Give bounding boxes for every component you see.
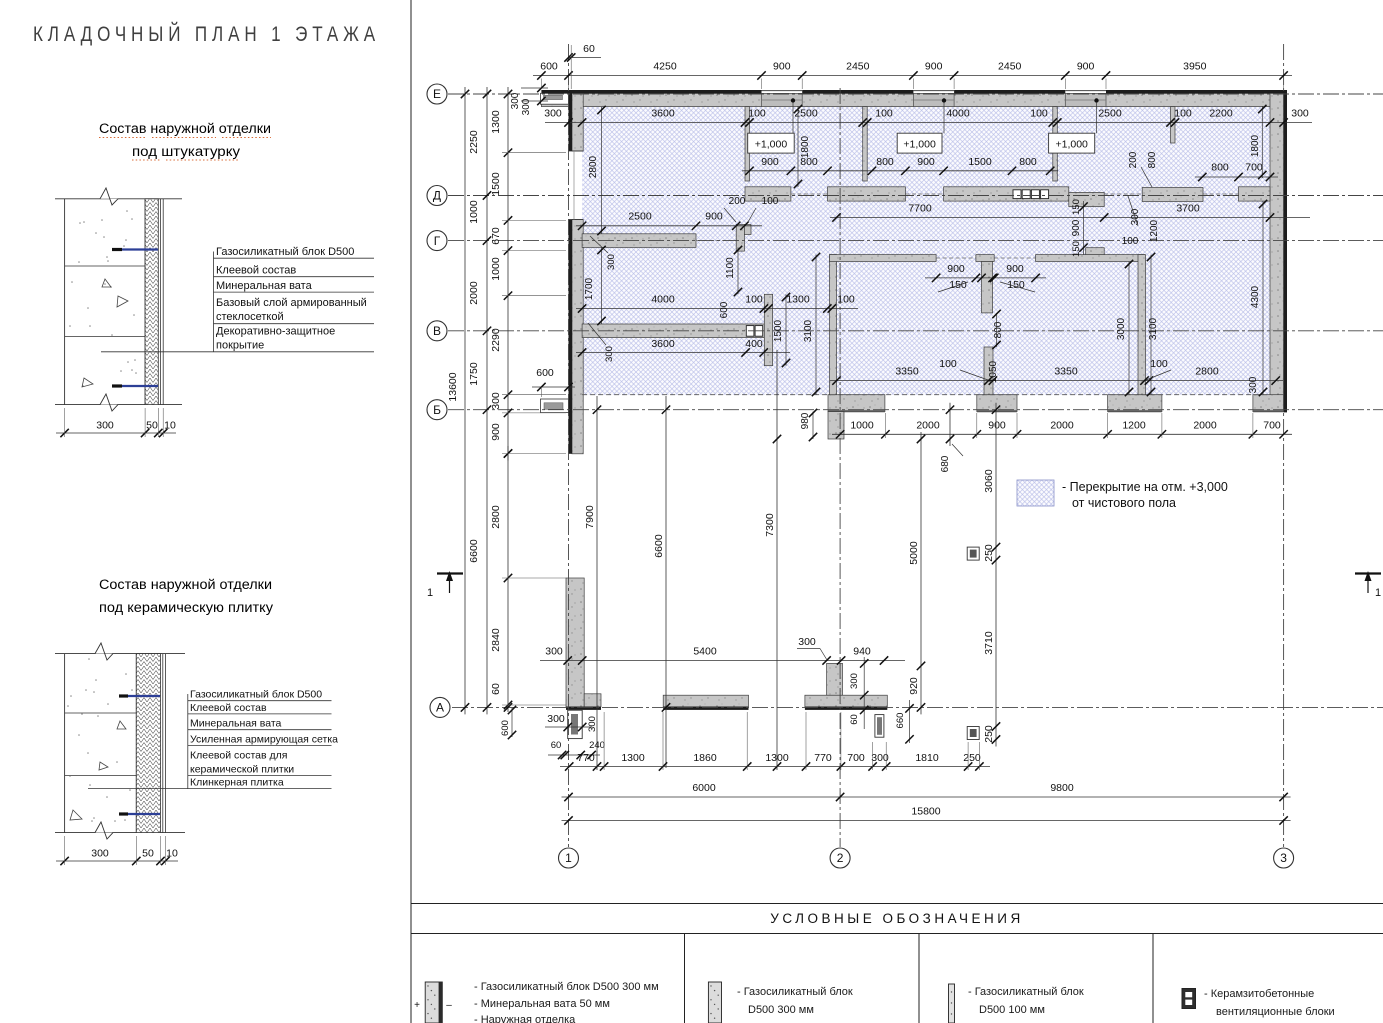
- svg-text:300: 300: [96, 420, 114, 432]
- svg-text:+: +: [414, 1000, 420, 1011]
- svg-text:300: 300: [587, 716, 598, 732]
- svg-text:1300: 1300: [786, 294, 810, 306]
- svg-text:1000: 1000: [850, 419, 874, 431]
- svg-text:2000: 2000: [1193, 419, 1217, 431]
- svg-text:керамической плитки: керамической плитки: [190, 764, 294, 776]
- svg-text:2500: 2500: [1098, 108, 1122, 120]
- svg-text:2800: 2800: [490, 505, 502, 529]
- svg-text:под штукатурку: под штукатурку: [132, 144, 240, 159]
- svg-text:1050: 1050: [988, 360, 999, 383]
- svg-text:100: 100: [875, 108, 893, 120]
- svg-text:250: 250: [983, 725, 995, 743]
- svg-text:1810: 1810: [915, 752, 939, 764]
- svg-text:7700: 7700: [908, 203, 932, 215]
- svg-text:200: 200: [729, 196, 746, 207]
- svg-text:2: 2: [837, 851, 844, 865]
- svg-text:Клеевой состав для: Клеевой состав для: [190, 750, 287, 762]
- svg-text:300: 300: [604, 346, 615, 362]
- svg-text:700: 700: [847, 752, 865, 764]
- svg-text:В: В: [433, 324, 441, 338]
- svg-text:1300: 1300: [765, 752, 789, 764]
- svg-text:100: 100: [1122, 236, 1139, 247]
- svg-text:Газосиликатный блок D500: Газосиликатный блок D500: [216, 246, 354, 258]
- svg-text:600: 600: [540, 61, 558, 73]
- svg-text:3060: 3060: [983, 469, 995, 493]
- svg-text:3700: 3700: [1176, 203, 1200, 215]
- svg-text:3100: 3100: [1148, 317, 1159, 340]
- svg-text:6600: 6600: [653, 534, 665, 558]
- svg-text:150: 150: [1071, 199, 1082, 215]
- svg-text:2450: 2450: [846, 61, 870, 73]
- svg-text:Д: Д: [433, 189, 441, 203]
- svg-text:Базовый слой армированный: Базовый слой армированный: [216, 297, 367, 309]
- svg-text:400: 400: [745, 338, 763, 350]
- svg-text:980: 980: [800, 412, 811, 429]
- svg-text:13600: 13600: [447, 372, 459, 401]
- svg-text:4000: 4000: [946, 108, 970, 120]
- svg-text:2800: 2800: [1195, 366, 1219, 378]
- svg-text:2800: 2800: [588, 155, 599, 178]
- svg-text:300: 300: [849, 673, 860, 689]
- svg-text:3000: 3000: [1116, 317, 1127, 340]
- svg-text:4250: 4250: [653, 61, 677, 73]
- svg-text:300: 300: [490, 392, 502, 410]
- svg-text:900: 900: [925, 61, 943, 73]
- svg-text:стеклосеткой: стеклосеткой: [216, 311, 284, 323]
- svg-text:1300: 1300: [490, 110, 502, 134]
- svg-text:3950: 3950: [1183, 61, 1207, 73]
- svg-text:1: 1: [565, 851, 572, 865]
- svg-text:Декоративно-защитное: Декоративно-защитное: [216, 326, 335, 338]
- svg-text:3710: 3710: [983, 631, 995, 655]
- svg-text:D500 100 мм: D500 100 мм: [979, 1004, 1045, 1016]
- svg-text:7300: 7300: [764, 513, 776, 537]
- svg-text:под керамическую плитку: под керамическую плитку: [99, 600, 273, 615]
- svg-text:1: 1: [1375, 587, 1381, 599]
- svg-text:Газосиликатный блок D500: Газосиликатный блок D500: [190, 689, 322, 701]
- svg-text:60: 60: [849, 714, 860, 725]
- svg-text:Минеральная вата: Минеральная вата: [216, 280, 313, 292]
- svg-text:680: 680: [940, 455, 951, 472]
- svg-text:6000: 6000: [692, 782, 716, 794]
- svg-text:1800: 1800: [1250, 134, 1261, 157]
- svg-text:940: 940: [853, 646, 871, 658]
- svg-text:1200: 1200: [1122, 419, 1146, 431]
- svg-text:4300: 4300: [1250, 285, 1261, 308]
- svg-text:300: 300: [1130, 208, 1141, 225]
- svg-text:4000: 4000: [651, 294, 675, 306]
- svg-text:+1,000: +1,000: [755, 139, 788, 151]
- svg-text:- Минеральная вата 50 мм: - Минеральная вата 50 мм: [474, 998, 610, 1010]
- svg-text:300: 300: [545, 646, 563, 658]
- svg-text:Б: Б: [433, 403, 441, 417]
- svg-text:- Керамзитобетонные: - Керамзитобетонные: [1204, 988, 1314, 1000]
- svg-text:250: 250: [963, 752, 981, 764]
- svg-text:60: 60: [551, 740, 562, 751]
- svg-text:100: 100: [1150, 358, 1168, 370]
- svg-text:Е: Е: [433, 87, 441, 101]
- svg-text:60: 60: [490, 683, 502, 695]
- svg-text:1700: 1700: [584, 277, 595, 300]
- svg-text:700: 700: [1245, 162, 1263, 174]
- svg-text:5400: 5400: [693, 646, 717, 658]
- svg-text:100: 100: [748, 108, 766, 120]
- svg-text:1300: 1300: [621, 752, 645, 764]
- svg-text:2840: 2840: [490, 628, 502, 652]
- svg-text:2000: 2000: [468, 281, 480, 305]
- svg-text:600: 600: [719, 301, 730, 318]
- svg-text:300: 300: [510, 92, 521, 109]
- svg-text:7900: 7900: [584, 505, 596, 529]
- svg-text:920: 920: [908, 677, 920, 695]
- svg-text:покрытие: покрытие: [216, 340, 264, 352]
- svg-text:900: 900: [988, 419, 1006, 431]
- svg-text:100: 100: [837, 294, 855, 306]
- svg-text:800: 800: [993, 321, 1004, 338]
- svg-text:Г: Г: [434, 234, 441, 248]
- svg-text:900: 900: [761, 156, 779, 168]
- svg-text:900: 900: [773, 61, 791, 73]
- svg-text:6600: 6600: [468, 539, 480, 563]
- svg-text:1500: 1500: [968, 156, 992, 168]
- svg-text:1860: 1860: [693, 752, 717, 764]
- svg-text:300: 300: [544, 108, 562, 120]
- svg-text:250: 250: [983, 544, 995, 562]
- svg-text:300: 300: [606, 254, 617, 270]
- svg-text:Состав наружной отделки: Состав наружной отделки: [99, 121, 271, 136]
- svg-text:от чистового пола: от чистового пола: [1072, 496, 1176, 510]
- svg-text:D500 300 мм: D500 300 мм: [748, 1004, 814, 1016]
- svg-text:1000: 1000: [468, 200, 480, 224]
- svg-text:2290: 2290: [490, 328, 502, 352]
- svg-text:Клеевой состав: Клеевой состав: [216, 265, 296, 277]
- svg-text:900: 900: [1077, 61, 1095, 73]
- svg-text:100: 100: [1174, 108, 1192, 120]
- svg-text:Минеральная вата: Минеральная вата: [190, 718, 282, 730]
- svg-text:10: 10: [166, 848, 178, 860]
- svg-text:9800: 9800: [1050, 782, 1074, 794]
- svg-text:60: 60: [583, 43, 595, 55]
- svg-text:УСЛОВНЫЕ ОБОЗНАЧЕНИЯ: УСЛОВНЫЕ ОБОЗНАЧЕНИЯ: [770, 911, 1023, 926]
- svg-text:3600: 3600: [651, 108, 675, 120]
- svg-text:900: 900: [1071, 219, 1082, 236]
- svg-text:А: А: [436, 701, 444, 715]
- svg-text:50: 50: [142, 848, 154, 860]
- svg-text:3: 3: [1280, 851, 1287, 865]
- svg-text:660: 660: [895, 713, 906, 729]
- svg-text:800: 800: [876, 156, 894, 168]
- svg-text:1800: 1800: [800, 135, 811, 158]
- svg-text:670: 670: [490, 227, 502, 245]
- svg-text:900: 900: [705, 211, 723, 223]
- svg-text:600: 600: [536, 367, 554, 379]
- svg-text:300: 300: [547, 713, 565, 725]
- svg-text:5000: 5000: [908, 541, 920, 565]
- svg-text:1200: 1200: [1149, 219, 1160, 242]
- svg-text:300: 300: [1291, 108, 1309, 120]
- svg-text:+1,000: +1,000: [1055, 139, 1088, 151]
- svg-text:2200: 2200: [1209, 108, 1233, 120]
- svg-text:3100: 3100: [803, 319, 814, 342]
- svg-text:700: 700: [1263, 419, 1281, 431]
- svg-text:900: 900: [947, 263, 965, 275]
- svg-text:3350: 3350: [1054, 366, 1078, 378]
- svg-text:150: 150: [1071, 241, 1082, 257]
- svg-text:600: 600: [500, 720, 511, 736]
- svg-text:300: 300: [91, 848, 109, 860]
- svg-text:+1,000: +1,000: [903, 139, 936, 151]
- svg-text:2500: 2500: [628, 211, 652, 223]
- svg-text:770: 770: [577, 752, 595, 764]
- svg-text:Клинкерная плитка: Клинкерная плитка: [190, 777, 284, 789]
- svg-text:770: 770: [814, 752, 832, 764]
- svg-text:900: 900: [917, 156, 935, 168]
- svg-text:800: 800: [1147, 151, 1158, 168]
- svg-text:- Газосиликатный блок D500 30: - Газосиликатный блок D500 300 мм: [474, 981, 659, 993]
- svg-text:10: 10: [164, 420, 176, 432]
- svg-text:1500: 1500: [773, 319, 784, 342]
- svg-text:Усиленная армирующая сетка: Усиленная армирующая сетка: [190, 734, 338, 746]
- svg-text:100: 100: [762, 196, 779, 207]
- svg-text:50: 50: [146, 420, 158, 432]
- svg-text:800: 800: [1019, 156, 1037, 168]
- svg-text:- Наружная отделка: - Наружная отделка: [474, 1014, 576, 1023]
- svg-text:1500: 1500: [490, 172, 502, 196]
- svg-text:1750: 1750: [468, 362, 480, 386]
- svg-text:–: –: [446, 1000, 452, 1011]
- svg-text:240: 240: [589, 740, 605, 751]
- svg-text:2000: 2000: [1050, 419, 1074, 431]
- svg-text:100: 100: [1030, 108, 1048, 120]
- svg-text:800: 800: [1211, 162, 1229, 174]
- svg-text:300: 300: [798, 636, 816, 648]
- svg-text:1: 1: [427, 587, 433, 599]
- svg-text:200: 200: [1128, 151, 1139, 168]
- svg-text:- Газосиликатный блок: - Газосиликатный блок: [968, 986, 1084, 998]
- svg-text:1000: 1000: [490, 257, 502, 281]
- svg-text:- Газосиликатный блок: - Газосиликатный блок: [737, 986, 853, 998]
- svg-text:15800: 15800: [911, 806, 940, 818]
- svg-text:300: 300: [1248, 376, 1259, 393]
- svg-text:КЛАДОЧНЫЙ ПЛАН 1 ЭТАЖА: КЛАДОЧНЫЙ ПЛАН 1 ЭТАЖА: [33, 22, 380, 46]
- svg-text:2450: 2450: [998, 61, 1022, 73]
- svg-text:- Перекрытие на отм. +3,000: - Перекрытие на отм. +3,000: [1062, 480, 1228, 494]
- svg-text:Клеевой состав: Клеевой состав: [190, 702, 267, 714]
- svg-text:вентиляционные блоки: вентиляционные блоки: [1216, 1006, 1335, 1018]
- svg-text:2000: 2000: [916, 419, 940, 431]
- svg-text:100: 100: [745, 294, 763, 306]
- svg-text:900: 900: [490, 423, 502, 441]
- svg-text:Состав наружной отделки: Состав наружной отделки: [99, 577, 272, 592]
- svg-text:900: 900: [1006, 263, 1024, 275]
- svg-text:3350: 3350: [895, 366, 919, 378]
- svg-text:3600: 3600: [651, 338, 675, 350]
- svg-text:100: 100: [939, 358, 957, 370]
- svg-text:2250: 2250: [468, 130, 480, 154]
- svg-text:1100: 1100: [725, 257, 736, 279]
